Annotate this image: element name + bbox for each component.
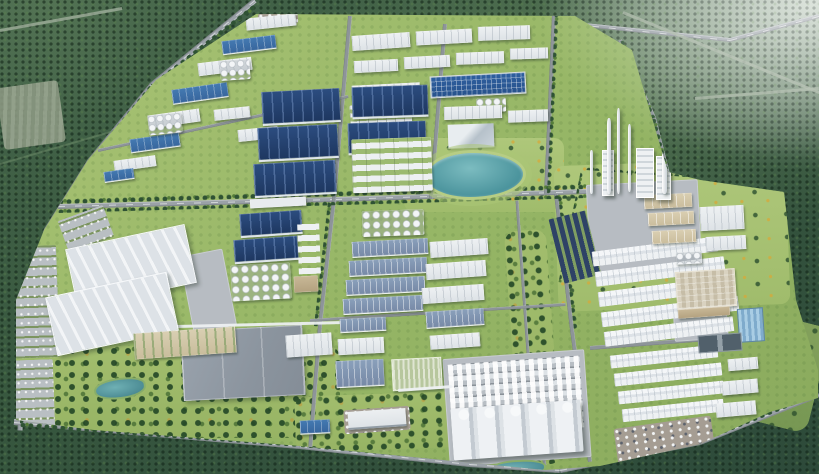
warehouse-navy-6 (239, 210, 303, 238)
preheater-tower-1 (636, 148, 654, 198)
aerial-render-viewport (0, 0, 819, 474)
factory-nw-row1 (246, 13, 297, 30)
warehouse-navy-2 (257, 124, 339, 162)
hall-midsouth-2 (426, 260, 487, 280)
utility-building-south (300, 419, 331, 435)
factory-north-3 (478, 25, 530, 41)
industrial-park-area (0, 0, 819, 474)
office-block-se-2 (715, 400, 756, 417)
process-plant-silos (450, 400, 583, 461)
cement-tank-row (676, 251, 703, 264)
hall-midsouth-3 (422, 284, 485, 304)
chimney-3 (628, 124, 631, 192)
office-block-se-3 (728, 357, 759, 372)
cement-warehouse-east-2 (706, 235, 747, 251)
warehouse-bluegray-3 (346, 276, 426, 296)
silo-group-center (362, 209, 425, 237)
forest-landscape (0, 0, 819, 474)
lakeside-pavilion (448, 123, 495, 149)
parking-west-strip-2 (1, 359, 55, 431)
cement-storage-3 (652, 229, 697, 244)
warehouse-navy-4 (351, 85, 428, 120)
cement-warehouse-east (699, 205, 744, 231)
sawtooth-plant-east (675, 268, 738, 310)
tank-cluster-nw-1 (219, 59, 250, 81)
road-north-highway-3 (729, 14, 819, 42)
factory-nw-row2 (221, 35, 276, 55)
factory-north-5 (404, 55, 451, 69)
solar-roof-hall (429, 72, 526, 99)
hall-south-2 (338, 337, 385, 355)
hall-south-1 (340, 317, 387, 333)
cement-storage-2 (648, 211, 695, 226)
chimney-2 (617, 108, 620, 194)
dormitory-campus (351, 137, 433, 194)
hall-midsouth-1 (430, 238, 489, 258)
factory-north-7 (510, 47, 548, 59)
factory-nw-row6 (129, 133, 180, 154)
warehouse-bluegray-1 (352, 238, 429, 258)
office-slab-center (250, 197, 306, 209)
factory-nw-row8 (103, 168, 134, 183)
warehouse-navy-7 (233, 236, 299, 264)
factory-north-9 (444, 105, 502, 120)
factory-north-10 (508, 109, 548, 122)
warehouse-navy-3 (253, 160, 337, 198)
factory-north-4 (354, 59, 399, 73)
chimney-1 (607, 118, 611, 194)
forest-road-northwest (0, 7, 122, 32)
tank-farm-central (230, 262, 292, 301)
hall-south-3 (335, 359, 384, 388)
factory-north-1 (352, 32, 411, 51)
warehouse-bluegray-2 (349, 257, 428, 277)
factory-north-2 (416, 29, 473, 46)
tank-cluster-nw-2 (147, 112, 183, 135)
warehouse-navy-1 (261, 88, 341, 126)
office-block-se-1 (721, 378, 758, 395)
forest-road-northeast-2 (695, 87, 819, 100)
chimney-5 (590, 150, 593, 194)
factory-nw-row4 (171, 82, 229, 105)
slab-column-center (297, 222, 321, 275)
hall-southwest-small (285, 332, 332, 357)
sedimentation-basins (697, 332, 742, 353)
hall-midsouth-5 (430, 332, 481, 349)
hall-midsouth-4 (425, 308, 484, 329)
field-northwest (0, 80, 66, 150)
factory-north-6 (456, 51, 504, 65)
office-brown-center (294, 275, 319, 292)
